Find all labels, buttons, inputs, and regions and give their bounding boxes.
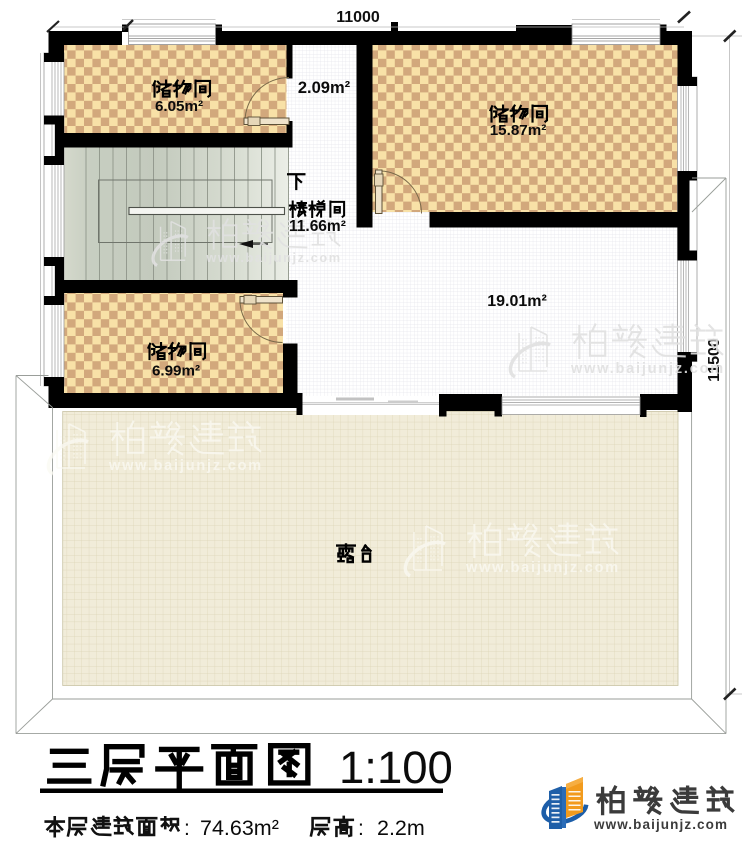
svg-text:11.66m²: 11.66m² [289,218,346,235]
svg-text:19.01m²: 19.01m² [487,293,547,310]
svg-text::: : [184,817,190,840]
svg-text:6.05m²: 6.05m² [155,98,203,115]
svg-text::: : [358,817,364,840]
svg-text:15.87m²: 15.87m² [490,122,547,139]
svg-text:6.99m²: 6.99m² [152,363,200,380]
svg-text:74.63m²: 74.63m² [200,816,279,840]
svg-text:2.2m: 2.2m [377,816,425,840]
svg-text:www.baijunjz.com: www.baijunjz.com [593,817,728,832]
svg-text:1:100: 1:100 [339,742,453,793]
svg-text:2.09m²: 2.09m² [298,79,351,97]
svg-text:11000: 11000 [336,9,380,26]
